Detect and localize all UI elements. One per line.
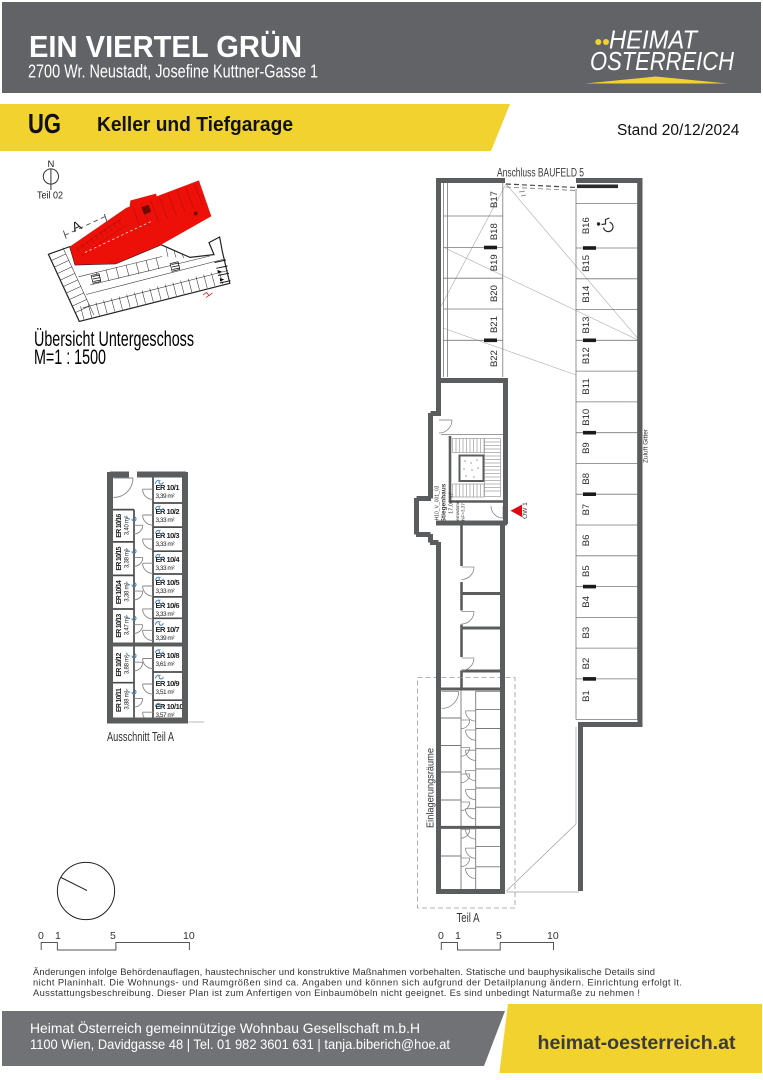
svg-text:Ausschnitt Teil A: Ausschnitt Teil A	[107, 729, 174, 744]
svg-text:ER 10/1: ER 10/1	[156, 483, 180, 492]
svg-text:ER 10/9: ER 10/9	[156, 679, 180, 688]
svg-text:3,88 m²: 3,88 m²	[125, 691, 131, 710]
svg-text:OW 1: OW 1	[522, 502, 529, 519]
svg-text:0: 0	[38, 930, 44, 942]
svg-text:ER 10/13: ER 10/13	[116, 614, 123, 638]
svg-text:B11: B11	[581, 378, 592, 394]
svg-text:Zuluft Gitter: Zuluft Gitter	[643, 428, 650, 463]
svg-text:Fernwärme: Fernwärme	[455, 500, 460, 523]
svg-text:2700 Wr. Neustadt, Josefine Ku: 2700 Wr. Neustadt, Josefine Kuttner-Gass…	[28, 62, 318, 82]
svg-text:B21: B21	[489, 316, 500, 333]
svg-text:Stiegenhaus: Stiegenhaus	[441, 483, 448, 522]
svg-text:B6: B6	[581, 535, 592, 547]
svg-text:ER 10/16: ER 10/16	[116, 514, 123, 538]
svg-text:B9: B9	[581, 442, 592, 454]
svg-text:NF=3,37: NF=3,37	[461, 503, 466, 521]
svg-text:Ausstattungsbeschreibung. Dies: Ausstattungsbeschreibung. Dieser Plan is…	[33, 987, 640, 998]
svg-text:3,33 m²: 3,33 m²	[156, 588, 176, 595]
svg-text:N: N	[47, 159, 54, 170]
svg-text:B14: B14	[581, 286, 592, 303]
svg-text:ER 10/14: ER 10/14	[116, 580, 123, 604]
svg-text:10: 10	[183, 930, 195, 942]
svg-text:B8: B8	[581, 473, 592, 485]
svg-text:B3: B3	[581, 627, 592, 639]
svg-text:Stand 20/12/2024: Stand 20/12/2024	[617, 122, 740, 139]
svg-text:B1: B1	[581, 690, 592, 702]
svg-text:3,88 m²: 3,88 m²	[125, 655, 131, 674]
svg-text:B17: B17	[489, 191, 500, 208]
svg-text:3,33 m²: 3,33 m²	[156, 517, 176, 524]
svg-text:Teil 02: Teil 02	[37, 191, 63, 202]
svg-text:1: 1	[455, 930, 461, 942]
svg-text:EIN VIERTEL GRÜN: EIN VIERTEL GRÜN	[29, 29, 302, 64]
svg-text:Einlagerungsräume: Einlagerungsräume	[425, 748, 437, 828]
svg-text:5: 5	[110, 930, 116, 942]
svg-text:5: 5	[496, 930, 502, 942]
svg-text:B20: B20	[489, 285, 500, 302]
svg-text:3,38 m²: 3,38 m²	[125, 583, 131, 602]
svg-text:nicht Planinhalt. Die Wohnungs: nicht Planinhalt. Die Wohnungs- und Raum…	[33, 977, 682, 988]
svg-text:Heimat Österreich gemeinnützig: Heimat Österreich gemeinnützige Wohnbau …	[30, 1019, 420, 1036]
svg-text:0: 0	[438, 930, 444, 942]
svg-text:3,38 m²: 3,38 m²	[125, 549, 131, 568]
svg-text:B2: B2	[581, 658, 592, 670]
svg-text:B5: B5	[581, 565, 592, 577]
svg-text:M=1 : 1500: M=1 : 1500	[34, 345, 106, 369]
svg-text:1: 1	[55, 930, 61, 942]
svg-text:3,39 m²: 3,39 m²	[156, 635, 176, 642]
svg-text:Änderungen infolge Behördenauf: Änderungen infolge Behördenauflagen, hau…	[33, 966, 655, 977]
svg-text:Anschluss BAUFELD 5: Anschluss BAUFELD 5	[497, 168, 584, 180]
svg-text:ER 10/7: ER 10/7	[156, 625, 180, 634]
svg-text:3,39 m²: 3,39 m²	[156, 493, 176, 500]
svg-text:B7: B7	[581, 504, 592, 516]
svg-text:17,06 m²: 17,06 m²	[449, 492, 455, 514]
svg-text:B22: B22	[489, 350, 500, 367]
svg-text:B15: B15	[581, 255, 592, 272]
svg-text:B12: B12	[581, 347, 592, 364]
svg-text:Teil A: Teil A	[457, 911, 480, 925]
svg-text:3,61 m²: 3,61 m²	[156, 661, 176, 668]
svg-text:B13: B13	[581, 317, 592, 334]
svg-text:ER 10/15: ER 10/15	[116, 547, 123, 571]
svg-text:B10: B10	[581, 409, 592, 426]
svg-text:1100 Wien, Davidgasse 48 | Tel: 1100 Wien, Davidgasse 48 | Tel. 01 982 3…	[30, 1036, 450, 1052]
svg-text:Keller und Tiefgarage: Keller und Tiefgarage	[97, 113, 293, 136]
svg-text:3,33 m²: 3,33 m²	[156, 611, 176, 618]
svg-text:B16: B16	[581, 217, 592, 234]
svg-text:3,33 m²: 3,33 m²	[156, 565, 176, 572]
svg-text:10: 10	[547, 930, 559, 942]
svg-text:B19: B19	[489, 254, 500, 271]
svg-text:3,47 m²: 3,47 m²	[125, 616, 131, 635]
svg-text:A: A	[69, 218, 84, 235]
svg-text:ER 10/11: ER 10/11	[116, 688, 123, 712]
svg-text:B18: B18	[489, 223, 500, 240]
svg-text:heimat-oesterreich.at: heimat-oesterreich.at	[538, 1033, 737, 1054]
svg-text:3,51 m²: 3,51 m²	[156, 689, 176, 696]
svg-text:ER 10/12: ER 10/12	[116, 653, 123, 677]
svg-text:UG: UG	[28, 108, 61, 139]
svg-text:B4: B4	[581, 596, 592, 608]
svg-text:OSTERREICH: OSTERREICH	[590, 46, 734, 76]
svg-text:3,33 m²: 3,33 m²	[156, 541, 176, 548]
